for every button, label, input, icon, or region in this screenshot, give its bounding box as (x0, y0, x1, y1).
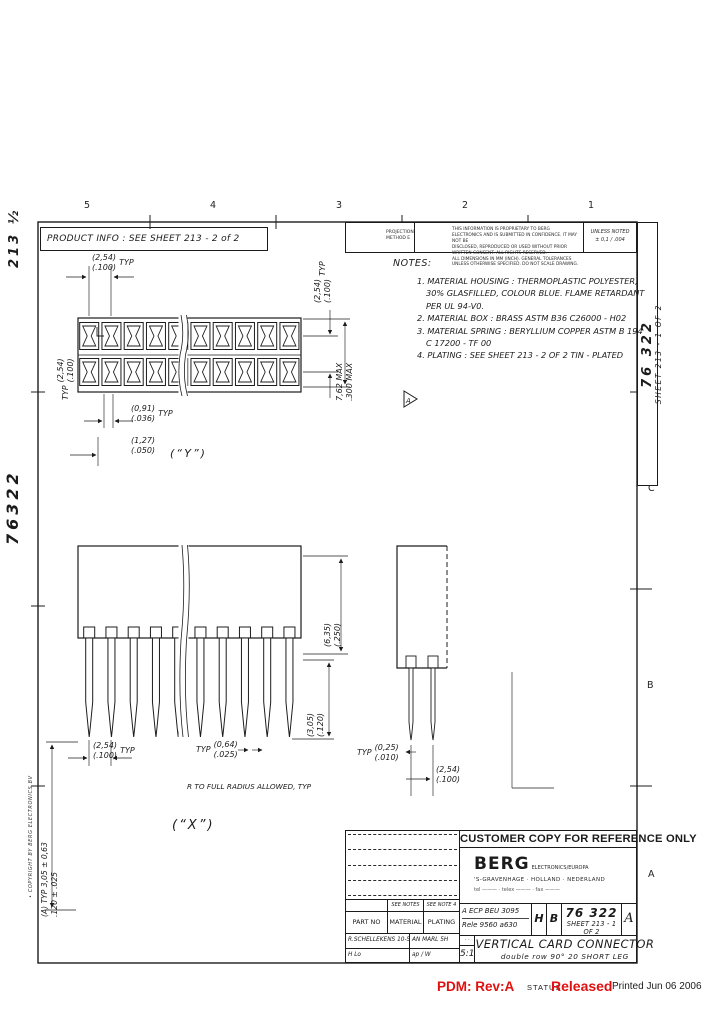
see-notes-label: SEE NOTES (387, 900, 423, 911)
dim-row-pitch-left: TYP (2,54)(.100) (56, 358, 75, 400)
side-view-dim-lines (406, 672, 554, 796)
front-view (78, 543, 301, 741)
edge-sheet-number: SHEET 213 - 1 OF 2 (654, 226, 663, 482)
datum-mark (97, 327, 104, 336)
dim-tail-a: (A) TYP 3,05 ± 0,63.120 ± .025 (40, 842, 59, 917)
dim-slot-width: (0,91)(.036) TYP (131, 404, 173, 423)
zone-number-4: 4 (210, 200, 216, 211)
scanned-drawing-sheet: A 213 ½ 76322 • COPYRIGHT BY BERG ELECTR… (0, 0, 720, 1012)
note-line: 4. PLATING : SEE SHEET 213 - 2 OF 2 TIN … (417, 349, 649, 361)
dim-pitch-bottom: (2,54)(.100) TYP (93, 741, 135, 760)
dim-body-height: (6,35)(.250) (323, 623, 342, 647)
scale-cell: · · 5:1 (460, 936, 475, 962)
note-line: 30% GLASFILLED, COLOUR BLUE. FLAME RETAR… (426, 287, 649, 299)
svg-text:A: A (405, 397, 411, 405)
dim-slot-pitch: (1,27)(.050) (131, 436, 155, 455)
scale-value: 5:1 (460, 946, 474, 962)
dim-side-pitch: (2,54)(.100) (436, 765, 460, 784)
pdm-revision: PDM: Rev:A (437, 979, 514, 994)
signature-approved-2: ap / W (409, 949, 459, 963)
printed-date: Printed Jun 06 2006 (612, 981, 702, 992)
dim-col-pitch-right: (2,54)(.100) TYP (313, 261, 332, 303)
material-header: MATERIAL (387, 912, 423, 933)
notes-title: NOTES: (393, 258, 649, 270)
notes-lines: 1. MATERIAL HOUSING : THERMOPLASTIC POLY… (393, 275, 649, 362)
title-block-revision-table: SEE NOTES SEE NOTE 4 PART NO MATERIAL PL… (346, 831, 460, 962)
see-spacer (346, 900, 387, 911)
top-view (78, 314, 301, 396)
zone-letter-b: B (647, 680, 654, 691)
revision-flag: A (404, 391, 417, 407)
dim-radius-note: R TO FULL RADIUS ALLOWED, TYP (187, 782, 311, 792)
size-code-b: B (546, 904, 561, 935)
note-line: PER UL 94-V0. (426, 300, 649, 312)
margin-sheet-note: 213 ½ (8, 188, 22, 268)
status-value: Released (551, 978, 612, 994)
zone-number-2: 2 (462, 200, 468, 211)
brand-address-2: tel ——— · telex ——— · fax ——— (474, 887, 636, 894)
zone-number-5: 5 (84, 200, 90, 211)
margin-copyright-note: • COPYRIGHT BY BERG ELECTRONICS BV (28, 616, 34, 898)
drawing-title-cell: VERTICAL CARD CONNECTOR double row 90° 2… (475, 936, 654, 962)
brand-address: 'S-GRAVENHAGE · HOLLAND · NEDERLAND (474, 876, 636, 884)
product-note-box: PRODUCT INFO : SEE SHEET 213 - 2 of 2 (40, 227, 268, 251)
margin-part-number-scrawl: 76322 (4, 423, 21, 545)
sheet-number: SHEET 213 - 1 OF 2 (562, 920, 621, 936)
side-view (397, 546, 447, 740)
zone-number-1: 1 (588, 200, 594, 211)
dim-height-max: 7,62 MAX.300 MAX (335, 363, 354, 401)
dim-pin-width: TYP (0,64)(.025) (196, 740, 238, 759)
note-line: C 17200 - TF 00 (426, 337, 649, 349)
scale-note: · · (460, 936, 474, 946)
projection-note: PROJECTION METHOD E (386, 230, 414, 241)
tolerance-note: UNLESS NOTED ± 0,1 / .004 (585, 229, 635, 244)
plating-header: PLATING (423, 912, 459, 933)
revision-entry: A ECP BEU 3095 Rele 9560 a630 (460, 904, 531, 935)
drawing-subtitle: double row 90° 20 SHORT LEG (475, 952, 654, 961)
dim-lead-length: (3,05)(.120) (306, 713, 325, 737)
dim-pitch-top: (2,54)(.100) TYP (92, 253, 134, 272)
revision-rows (346, 831, 459, 899)
part-number: 76 322 (562, 906, 621, 920)
signature-approved: H Lo (346, 949, 409, 963)
part-no-header: PART NO (346, 912, 387, 933)
zone-letter-a: A (648, 869, 655, 880)
note-line: 2. MATERIAL BOX : BRASS ASTM B36 C26000 … (417, 312, 649, 324)
revision-letter: A (621, 904, 636, 935)
title-block-main: CUSTOMER COPY FOR REFERENCE ONLY BERGELE… (460, 831, 636, 962)
signature-drawn: R.SCHELLEKENS 10-5-93 (346, 934, 409, 948)
title-block: SEE NOTES SEE NOTE 4 PART NO MATERIAL PL… (345, 830, 637, 963)
notes-block: NOTES: 1. MATERIAL HOUSING : THERMOPLAST… (393, 258, 649, 362)
note-line: 3. MATERIAL SPRING : BERYLLIUM COPPER AS… (417, 325, 649, 337)
view-label-y: (“Y”) (170, 447, 207, 460)
drawing-title: VERTICAL CARD CONNECTOR (475, 938, 654, 951)
part-number-cell: 76 322 SHEET 213 - 1 OF 2 (561, 904, 621, 935)
brand-tagline: ELECTRONICS/EUROPA (532, 865, 589, 871)
front-view-dim-lines (46, 556, 348, 910)
top-view-dim-lines (66, 266, 350, 466)
view-label-x: (“X”) (172, 818, 215, 833)
signature-checked: AN MARL 5H (409, 934, 459, 948)
note-line: 1. MATERIAL HOUSING : THERMOPLASTIC POLY… (417, 275, 649, 287)
brand-block: BERGELECTRONICS/EUROPA 'S-GRAVENHAGE · H… (460, 848, 636, 904)
dim-tail-thickness: TYP (0,25)(.010) (357, 743, 399, 762)
customer-copy-banner: CUSTOMER COPY FOR REFERENCE ONLY (460, 831, 636, 848)
berg-logo: BERG (474, 856, 530, 873)
see-note4-label: SEE NOTE 4 (423, 900, 459, 911)
zone-number-3: 3 (336, 200, 342, 211)
size-code-h: H (531, 904, 546, 935)
pdm-status-bar: PDM: Rev:A STATUS Released Printed Jun 0… (0, 975, 720, 1005)
